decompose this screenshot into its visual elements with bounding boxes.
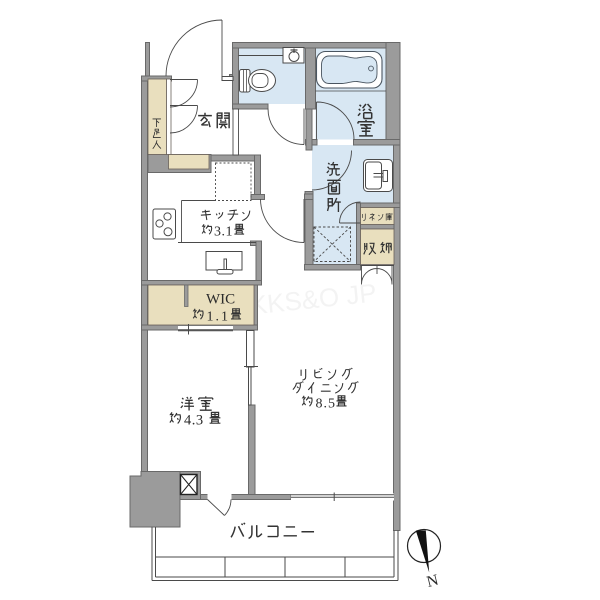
svg-text:1.1: 1.1 xyxy=(207,310,231,325)
svg-text:4.3: 4.3 xyxy=(184,413,204,429)
svg-text:8.5: 8.5 xyxy=(316,397,337,412)
svg-text:3.1: 3.1 xyxy=(214,225,233,240)
svg-text:WIC: WIC xyxy=(206,292,235,308)
